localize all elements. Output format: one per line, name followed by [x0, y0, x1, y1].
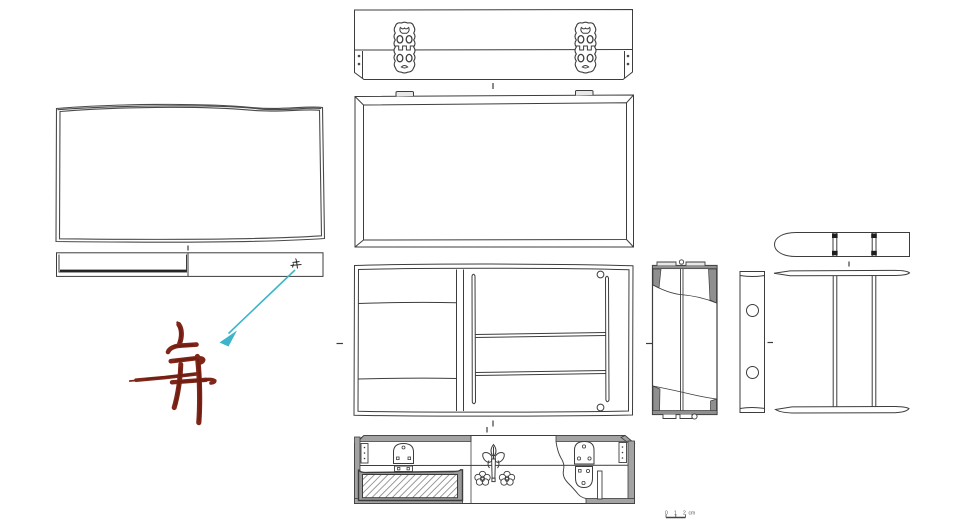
svg-text:0: 0	[665, 511, 668, 517]
svg-text:cm: cm	[689, 511, 696, 517]
